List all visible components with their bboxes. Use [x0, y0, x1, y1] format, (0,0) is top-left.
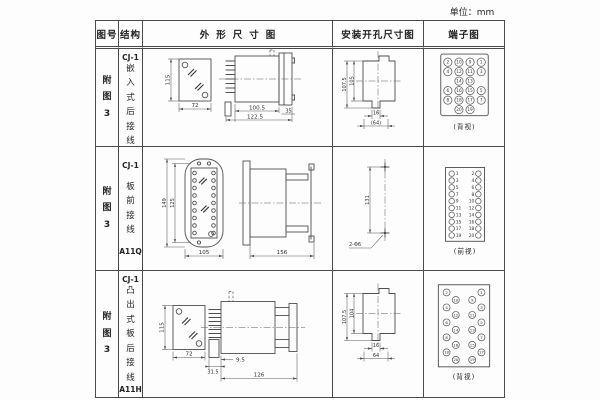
terminal-diagram-cell: (背视) 2110943121165141387161518172019 — [424, 271, 504, 397]
terminal-diagram-a11h: (背视) 2110943121165141387161518172019 — [424, 271, 504, 397]
terminal-number: 15 — [470, 342, 475, 347]
terminal-number: 20 — [456, 107, 462, 112]
terminal-circle — [476, 191, 482, 197]
terminal-circle — [476, 178, 482, 184]
terminal-circle — [449, 191, 455, 197]
relay-model: CJ-1 — [122, 53, 139, 62]
terminal-number: 17 — [467, 98, 473, 103]
svg-text:125: 125 — [170, 198, 176, 208]
terminal-number: 2 — [446, 60, 449, 65]
structure-code: A11Q — [119, 247, 142, 256]
view-label: (前视) — [454, 247, 477, 256]
mounting-drawing-cell: 131 2-Φ6 — [333, 147, 424, 271]
svg-text:105: 105 — [199, 250, 210, 256]
terminal-number: 18 — [444, 350, 449, 355]
terminal-diagram-cell: (背视) 2109141211314136161558181772019 — [424, 49, 504, 147]
structure-cell: CJ-1 嵌入式后接线 A11K — [119, 49, 143, 147]
view-label: (背视) — [453, 122, 475, 131]
terminal-circle — [449, 198, 455, 204]
header-figure-no: 图号 — [96, 21, 119, 49]
pen-mark — [188, 69, 197, 77]
pen-mark — [189, 332, 198, 340]
terminal-number: 12 — [456, 69, 462, 74]
terminal-number: 10 — [469, 199, 475, 205]
terminal-number: 9 — [471, 297, 474, 302]
terminal-number: 7 — [456, 192, 459, 198]
structure-code: A11H — [119, 385, 142, 394]
pen-mark — [182, 318, 191, 326]
terminal-circle — [449, 219, 455, 225]
svg-text:(64): (64) — [371, 121, 381, 127]
header-mounting-holes: 安装开孔尺寸图 — [333, 21, 424, 49]
terminal-number: 18 — [469, 226, 475, 232]
terminal-number: 17 — [456, 226, 462, 232]
terminal-number: 1 — [480, 290, 483, 295]
structure-desc: 板前接线 — [126, 180, 135, 238]
outline-drawing-a11h: 115 72 9.5 31.5 — [143, 271, 332, 397]
terminal-diagram-a11q: (前视) 1234567891011121314151617181920 — [424, 147, 504, 270]
terminal-number: 20 — [469, 233, 475, 239]
terminal-number: 3 — [480, 69, 483, 74]
terminal-number: 13 — [456, 212, 462, 218]
terminal-number: 20 — [453, 357, 458, 362]
terminal-number: 2 — [445, 290, 448, 295]
terminal-number: 19 — [467, 107, 473, 112]
svg-text:149: 149 — [162, 198, 168, 208]
svg-text:100.5: 100.5 — [249, 106, 265, 112]
svg-text:31.5: 31.5 — [207, 370, 218, 376]
terminal-number: 6 — [446, 88, 449, 93]
structure-desc: 凸出式板后接线 — [126, 284, 135, 385]
unit-label: 单位：mm — [432, 5, 512, 18]
svg-text:104: 104 — [350, 309, 356, 319]
terminal-number: 3 — [456, 178, 459, 184]
terminal-number: 6 — [445, 320, 448, 325]
terminal-number: 16 — [456, 88, 462, 93]
terminal-number: 6 — [472, 185, 475, 191]
outline-drawing-a11k: 115 72 100.5 35 — [143, 49, 332, 146]
terminal-number: 15 — [456, 219, 462, 225]
terminal-circle — [476, 205, 482, 211]
figure-no-cell: 附图3 — [96, 49, 119, 147]
terminal-number: 4 — [445, 305, 448, 310]
terminal-circle — [476, 226, 482, 232]
terminal-number: 8 — [472, 192, 475, 198]
terminal-number: 5 — [480, 88, 483, 93]
terminal-number: 1 — [456, 171, 459, 177]
structure-cell: CJ-1 板前接线 A11Q — [119, 147, 143, 271]
outline-drawing-a11q: 149 125 105 15 — [143, 147, 332, 270]
svg-text:126: 126 — [254, 373, 265, 379]
terminal-number: 17 — [479, 350, 484, 355]
terminal-circle — [449, 212, 455, 218]
terminal-number: 19 — [470, 357, 475, 362]
svg-text:35: 35 — [285, 109, 291, 115]
svg-text:2-Φ6: 2-Φ6 — [349, 242, 361, 248]
terminal-diagram-a11k: (背视) 2109141211314136161558181772019 — [424, 49, 504, 146]
view-label: (背视) — [453, 372, 476, 381]
header-structure: 结构 — [119, 21, 143, 49]
terminal-number: 1 — [480, 60, 483, 65]
mounting-drawing-cell: 107.5 105 16 (64) — [333, 49, 424, 147]
outline-drawing-cell: 149 125 105 15 — [143, 147, 333, 271]
terminal-number: 10 — [453, 297, 458, 302]
terminal-number: 14 — [456, 79, 462, 84]
terminal-number: 4 — [446, 69, 449, 74]
structure-cell: CJ-1 凸出式板后接线 A11H — [119, 271, 143, 397]
terminal-number: 9 — [456, 199, 459, 205]
terminal-number: 3 — [480, 305, 483, 310]
relay-model: CJ-1 — [122, 275, 139, 284]
terminal-number: 8 — [446, 98, 449, 103]
svg-text:72: 72 — [191, 103, 198, 109]
mounting-holes-a11q: 131 2-Φ6 — [333, 147, 423, 270]
pen-mark — [201, 206, 209, 213]
figure-no: 附图3 — [102, 184, 111, 234]
terminal-circle — [449, 185, 455, 191]
relay-model: CJ-1 — [122, 161, 139, 170]
terminal-number: 13 — [467, 79, 473, 84]
terminal-number: 12 — [453, 312, 458, 317]
svg-text:107.5: 107.5 — [342, 77, 348, 91]
figure-no-cell: 附图3 — [96, 271, 119, 397]
header-outline-dims: 外形尺寸图 — [143, 21, 333, 49]
terminal-number: 18 — [456, 98, 462, 103]
terminal-diagram-cell: (前视) 1234567891011121314151617181920 — [424, 147, 504, 271]
svg-text:122.5: 122.5 — [247, 115, 263, 121]
terminal-number: 12 — [469, 206, 475, 212]
terminal-circle — [476, 171, 482, 177]
terminal-number: 9 — [469, 60, 472, 65]
terminal-number: 19 — [456, 233, 462, 239]
mounting-holes-a11k: 107.5 105 16 (64) — [333, 49, 423, 146]
figure-no: 附图3 — [102, 309, 111, 359]
terminal-circle — [476, 233, 482, 239]
terminal-number: 14 — [469, 212, 475, 218]
terminal-circle — [476, 219, 482, 225]
terminal-number: 14 — [453, 327, 458, 332]
svg-text:115: 115 — [166, 74, 172, 85]
terminal-number: 16 — [453, 342, 458, 347]
terminal-number: 7 — [480, 98, 483, 103]
terminal-number: 8 — [445, 335, 448, 340]
terminal-circle — [476, 198, 482, 204]
header-terminal-diagram: 端子图 — [424, 21, 504, 49]
svg-text:16: 16 — [373, 343, 379, 349]
structure-desc: 嵌入式后接线 — [126, 62, 135, 147]
terminal-circle — [449, 226, 455, 232]
terminal-circle — [476, 212, 482, 218]
terminal-number: 11 — [470, 312, 475, 317]
pen-mark — [195, 83, 204, 91]
terminal-number: 11 — [456, 206, 462, 212]
terminal-circle — [449, 178, 455, 184]
terminal-number: 10 — [456, 60, 462, 65]
svg-text:64: 64 — [373, 353, 379, 359]
svg-text:156: 156 — [277, 250, 288, 256]
outline-drawing-cell: 115 72 9.5 31.5 — [143, 271, 333, 397]
figure-no: 附图3 — [102, 73, 111, 123]
terminal-circle — [449, 171, 455, 177]
terminal-number: 5 — [456, 185, 459, 191]
pen-mark — [199, 178, 207, 185]
terminal-circle — [476, 185, 482, 191]
svg-text:107.5: 107.5 — [342, 310, 348, 324]
mounting-holes-a11h: 107.5 104 16 64 — [333, 271, 423, 397]
figure-no-cell: 附图3 — [96, 147, 119, 271]
svg-text:9.5: 9.5 — [236, 358, 245, 364]
terminal-number: 15 — [467, 88, 473, 93]
dimension-table: 图号 结构 外形尺寸图 安装开孔尺寸图 端子图 附图3 CJ-1 嵌入式后接线 … — [95, 20, 505, 398]
terminal-number: 7 — [480, 335, 483, 340]
terminal-number: 4 — [472, 178, 475, 184]
svg-text:16: 16 — [373, 111, 379, 117]
outline-drawing-cell: 115 72 100.5 35 — [143, 49, 333, 147]
terminal-circle — [449, 233, 455, 239]
svg-text:115: 115 — [160, 322, 166, 333]
terminal-number: 13 — [470, 327, 475, 332]
mounting-drawing-cell: 107.5 104 16 64 — [333, 271, 424, 397]
terminal-number: 5 — [480, 320, 483, 325]
terminal-circle — [449, 205, 455, 211]
svg-text:105: 105 — [350, 76, 356, 86]
svg-text:131: 131 — [365, 195, 371, 205]
terminal-number: 11 — [467, 69, 473, 74]
terminal-number: 2 — [472, 171, 475, 177]
svg-text:72: 72 — [185, 352, 192, 358]
terminal-number: 16 — [469, 219, 475, 225]
